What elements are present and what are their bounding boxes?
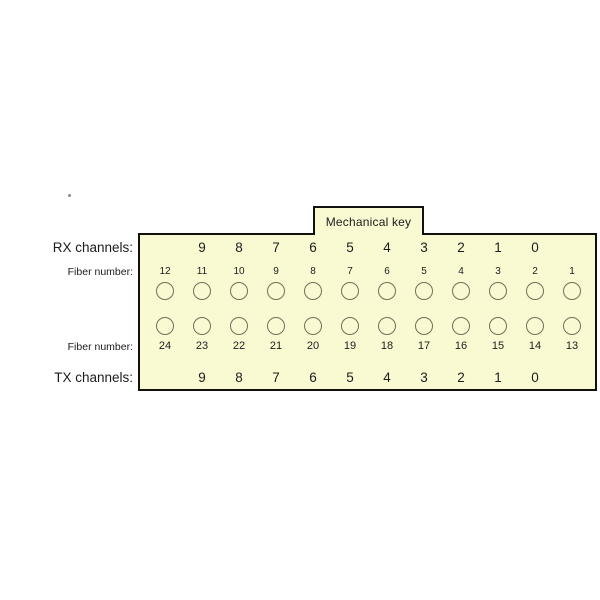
fiber-port-circle: [267, 317, 285, 335]
mpo-connector-fiber-map-diagram: Mechanical key RX channels: Fiber number…: [0, 0, 600, 600]
fiber-port-circle: [415, 282, 433, 300]
fiber-number-top: 2: [532, 266, 538, 278]
tx-channel-number: 0: [531, 370, 539, 386]
fiber-port-circle: [341, 317, 359, 335]
mechanical-key-tab: Mechanical key: [313, 206, 424, 235]
tx-channel-number: 8: [235, 370, 243, 386]
tx-channel-number: 9: [198, 370, 206, 386]
fiber-port-circle: [378, 317, 396, 335]
artifact-dot: [68, 194, 71, 197]
fiber-port-circle: [230, 282, 248, 300]
fiber-number-bottom: 22: [233, 340, 245, 353]
fiber-number-top: 3: [495, 266, 501, 278]
fiber-number-top: 1: [569, 266, 575, 278]
rx-channel-number: 2: [457, 240, 465, 256]
fiber-number-bottom: 14: [529, 340, 541, 353]
fiber-port-circle: [267, 282, 285, 300]
rx-channel-number: 5: [346, 240, 354, 256]
fiber-port-circle: [452, 317, 470, 335]
fiber-number-top: 6: [384, 266, 390, 278]
rx-channel-number: 9: [198, 240, 206, 256]
rx-channel-number: 3: [420, 240, 428, 256]
rx-channel-number: 7: [272, 240, 280, 256]
fiber-number-bottom: 17: [418, 340, 430, 353]
fiber-port-circle: [526, 282, 544, 300]
fiber-number-bottom: 21: [270, 340, 282, 353]
fiber-number-bottom: 24: [159, 340, 171, 353]
fiber-number-bottom: 15: [492, 340, 504, 353]
fiber-port-circle: [156, 317, 174, 335]
fiber-port-circle: [193, 282, 211, 300]
fiber-number-bottom: 13: [566, 340, 578, 353]
fiber-number-top: 4: [458, 266, 464, 278]
fiber-number-top: 11: [197, 266, 207, 278]
rx-channel-number: 4: [383, 240, 391, 256]
tx-channel-number: 7: [272, 370, 280, 386]
rx-channels-label: RX channels:: [53, 240, 133, 255]
fiber-port-circle: [378, 282, 396, 300]
rx-channel-number: 0: [531, 240, 539, 256]
fiber-number-bottom-label: Fiber number:: [68, 341, 133, 353]
fiber-number-top-label: Fiber number:: [68, 266, 133, 278]
fiber-number-top: 5: [421, 266, 427, 278]
fiber-port-circle: [341, 282, 359, 300]
fiber-number-bottom: 20: [307, 340, 319, 353]
fiber-number-top: 10: [233, 266, 244, 278]
rx-channel-number: 8: [235, 240, 243, 256]
fiber-port-circle: [489, 317, 507, 335]
tx-channel-number: 4: [383, 370, 391, 386]
fiber-port-circle: [230, 317, 248, 335]
fiber-port-circle: [304, 317, 322, 335]
fiber-number-bottom: 18: [381, 340, 393, 353]
tx-channel-number: 3: [420, 370, 428, 386]
fiber-port-circle: [563, 317, 581, 335]
connector-body: [138, 233, 597, 391]
fiber-port-circle: [526, 317, 544, 335]
fiber-port-circle: [193, 317, 211, 335]
fiber-port-circle: [304, 282, 322, 300]
fiber-port-circle: [156, 282, 174, 300]
fiber-port-circle: [415, 317, 433, 335]
fiber-port-circle: [563, 282, 581, 300]
rx-channel-number: 6: [309, 240, 317, 256]
fiber-number-top: 9: [273, 266, 279, 278]
fiber-port-circle: [452, 282, 470, 300]
tx-channel-number: 5: [346, 370, 354, 386]
fiber-port-circle: [489, 282, 507, 300]
tx-channel-number: 6: [309, 370, 317, 386]
rx-channel-number: 1: [494, 240, 502, 256]
fiber-number-top: 12: [159, 266, 170, 278]
fiber-number-bottom: 16: [455, 340, 467, 353]
fiber-number-bottom: 19: [344, 340, 356, 353]
tx-channels-label: TX channels:: [54, 370, 133, 385]
mechanical-key-label: Mechanical key: [326, 215, 412, 229]
fiber-number-bottom: 23: [196, 340, 208, 353]
fiber-number-top: 7: [347, 266, 353, 278]
tx-channel-number: 2: [457, 370, 465, 386]
tx-channel-number: 1: [494, 370, 502, 386]
fiber-number-top: 8: [310, 266, 316, 278]
